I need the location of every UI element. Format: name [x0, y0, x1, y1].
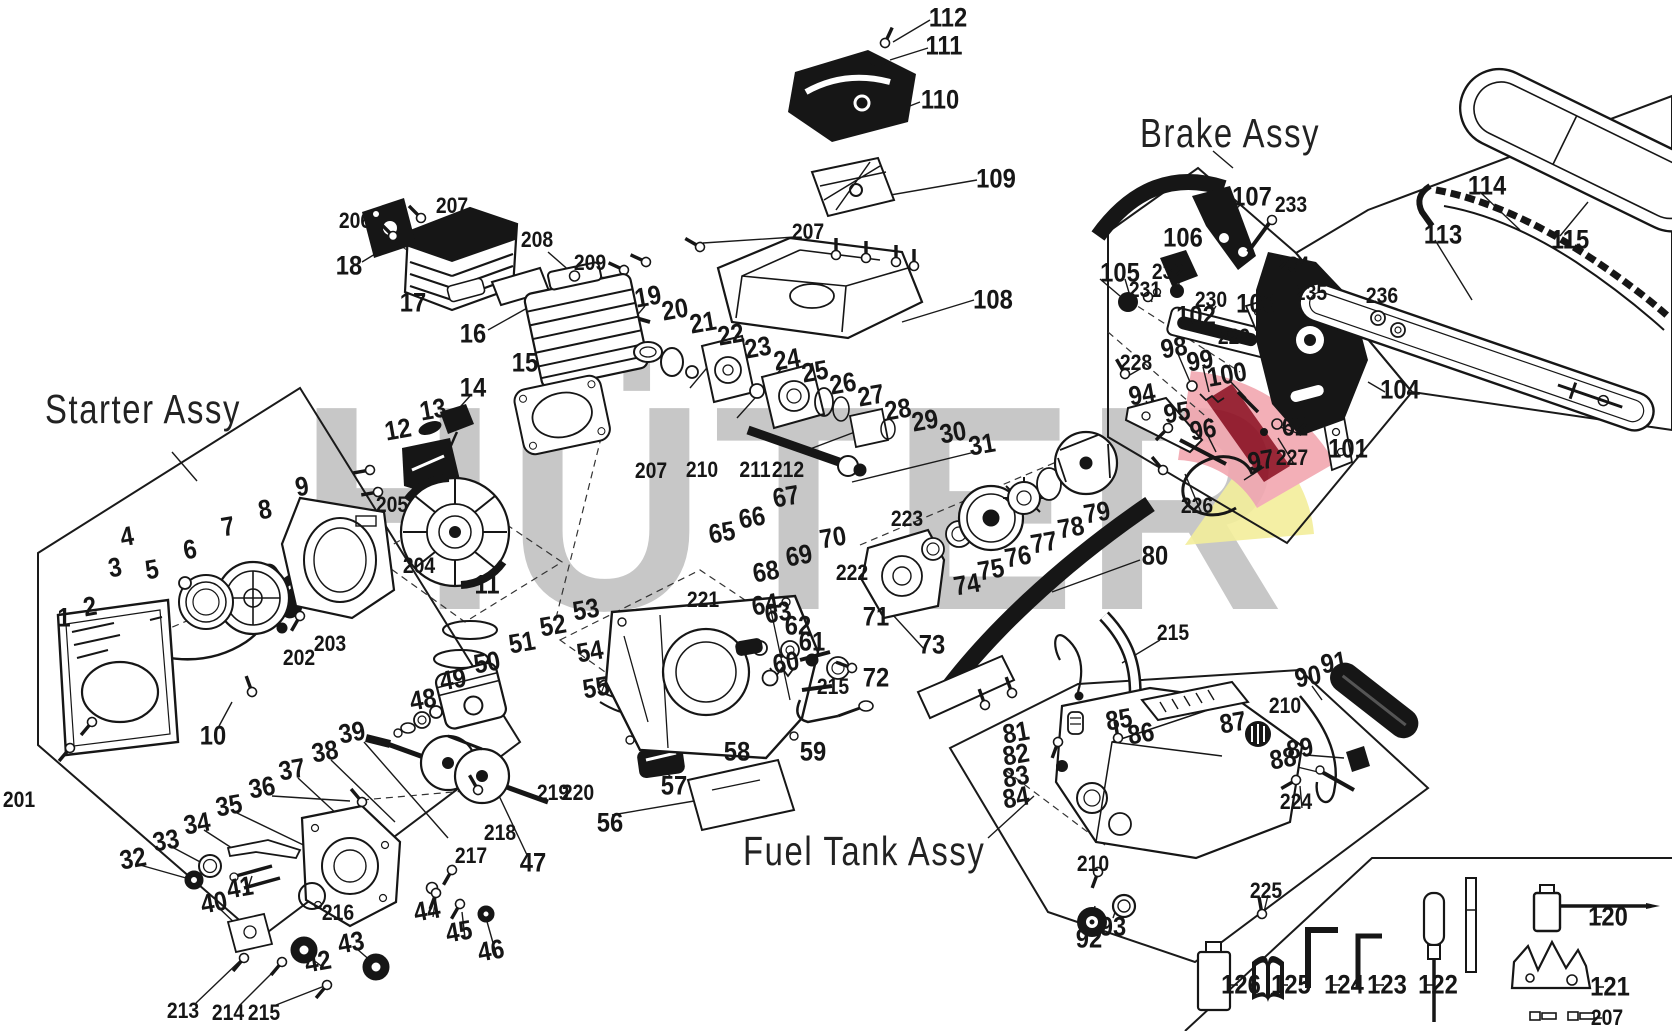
callout-46: 46: [476, 935, 507, 966]
callout-23: 23: [743, 332, 774, 363]
callout-215: 215: [817, 676, 849, 698]
callout-65: 65: [707, 517, 738, 548]
callout-101: 101: [1328, 436, 1368, 463]
callout-221: 221: [687, 589, 719, 611]
callout-42: 42: [303, 946, 334, 977]
callout-87: 87: [1218, 707, 1249, 738]
callout-57: 57: [661, 773, 687, 800]
callout-84: 84: [1001, 782, 1032, 813]
callout-55: 55: [581, 672, 612, 703]
callout-53: 53: [571, 594, 602, 625]
bumper-spike-icon: [1512, 942, 1590, 988]
callout-92: 92: [1076, 926, 1102, 953]
callout-68: 68: [751, 556, 782, 587]
callout-26: 26: [828, 368, 859, 399]
callout-69: 69: [784, 540, 815, 571]
callout-210: 210: [1269, 695, 1301, 717]
callout-111: 111: [925, 33, 962, 60]
callout-76: 76: [1003, 541, 1034, 572]
callout-218: 218: [484, 822, 516, 844]
callout-39: 39: [337, 717, 368, 748]
callout-210: 210: [686, 459, 718, 481]
callout-77: 77: [1029, 527, 1060, 558]
callout-125: 125: [1271, 972, 1311, 999]
callout-207: 207: [436, 195, 468, 217]
callout-1: 1: [57, 605, 70, 632]
callout-206: 206: [339, 210, 371, 232]
callout-227: 227: [1276, 447, 1308, 469]
callout-59: 59: [800, 739, 826, 766]
callout-217: 217: [455, 845, 487, 867]
callout-213: 213: [167, 1000, 199, 1022]
callout-16: 16: [460, 321, 486, 348]
callout-103: 103: [1236, 291, 1276, 318]
callout-106: 106: [1163, 225, 1203, 252]
callout-215: 215: [1157, 622, 1189, 644]
fuel-tank-sketch: [1056, 682, 1302, 858]
callout-86: 86: [1126, 718, 1157, 749]
callout-96: 96: [1188, 414, 1219, 445]
callout-49: 49: [438, 664, 469, 695]
flat-file-icon: [1466, 878, 1476, 972]
callout-30: 30: [938, 417, 969, 448]
callout-235: 235: [1295, 282, 1327, 304]
callout-24: 24: [772, 344, 803, 375]
callout-21: 21: [688, 307, 719, 338]
callout-15: 15: [512, 350, 538, 377]
callout-216: 216: [322, 902, 354, 924]
callout-35: 35: [214, 790, 245, 821]
callout-10: 10: [200, 723, 226, 750]
callout-228: 228: [1120, 352, 1152, 374]
callout-20: 20: [660, 294, 691, 325]
callout-104: 104: [1380, 377, 1420, 404]
callout-120: 120: [1588, 904, 1628, 931]
callout-60: 60: [771, 647, 802, 678]
callout-32: 32: [118, 843, 149, 874]
callout-226: 226: [1181, 495, 1213, 517]
callout-211: 211: [739, 459, 770, 481]
gasket-plate-sketch: [688, 760, 794, 830]
callout-124: 124: [1324, 972, 1364, 999]
callout-123: 123: [1367, 972, 1407, 999]
callout-36: 36: [247, 772, 278, 803]
callout-233: 233: [1275, 194, 1307, 216]
callout-208: 208: [521, 229, 553, 251]
callout-29: 29: [910, 405, 941, 436]
callout-207: 207: [792, 221, 824, 243]
callout-70: 70: [818, 522, 849, 553]
callout-90: 90: [1293, 661, 1324, 692]
callout-209: 209: [574, 252, 606, 274]
callout-54: 54: [575, 636, 606, 667]
cylinder-gasket-sketch: [512, 374, 612, 457]
callout-72: 72: [863, 665, 889, 692]
callout-17: 17: [400, 290, 426, 317]
callout-56: 56: [597, 810, 623, 837]
callout-202: 202: [283, 647, 315, 669]
callout-18: 18: [336, 253, 362, 280]
callout-115: 115: [1551, 227, 1589, 254]
callout-52: 52: [538, 610, 569, 641]
callout-44: 44: [412, 895, 443, 926]
callout-43: 43: [336, 927, 367, 958]
callout-11: 11: [474, 572, 499, 599]
callout-204: 204: [403, 555, 435, 577]
callout-112: 112: [929, 5, 967, 32]
callout-79: 79: [1082, 497, 1113, 528]
callout-214: 214: [212, 1002, 244, 1024]
callout-37: 37: [277, 754, 308, 785]
callout-113: 113: [1424, 222, 1462, 249]
fuel-tank-assy-label: Fuel Tank Assy: [743, 828, 985, 875]
callout-51: 51: [507, 627, 538, 658]
callout-236: 236: [1366, 285, 1398, 307]
callout-205: 205: [376, 494, 408, 516]
callout-13: 13: [418, 394, 449, 425]
callout-207: 207: [635, 460, 667, 482]
callout-12: 12: [383, 414, 414, 445]
callout-220: 220: [562, 782, 594, 804]
callout-91: 91: [1319, 647, 1350, 678]
callout-109: 109: [976, 166, 1016, 193]
callout-108: 108: [973, 287, 1013, 314]
callout-34: 34: [182, 808, 213, 839]
callout-14: 14: [460, 375, 486, 402]
brake-assy-label: Brake Assy: [1140, 110, 1320, 157]
parts-diagram-page: HÜTER: [0, 0, 1672, 1031]
callout-38: 38: [310, 736, 341, 767]
legend-screws-icon: [1530, 1012, 1594, 1020]
callout-71: 71: [863, 604, 889, 631]
callout-215: 215: [248, 1002, 280, 1024]
callout-80: 80: [1142, 543, 1168, 570]
callout-48: 48: [408, 684, 439, 715]
starter-assy-label: Starter Assy: [45, 386, 241, 433]
callout-207: 207: [1591, 1007, 1623, 1029]
callout-203: 203: [314, 633, 346, 655]
callout-231: 231: [1129, 279, 1161, 301]
callout-64: 64: [750, 589, 781, 620]
starter-housing-sketch: [56, 600, 178, 764]
callout-222: 222: [836, 562, 868, 584]
callout-45: 45: [444, 916, 475, 947]
callout-107: 107: [1232, 184, 1272, 211]
washer-sketch: [179, 577, 191, 589]
callout-224: 224: [1280, 791, 1312, 813]
callout-225: 225: [1250, 880, 1282, 902]
callout-102: 102: [1176, 303, 1216, 330]
callout-75: 75: [976, 554, 1007, 585]
pawl-sketch: [277, 623, 288, 634]
screwdriver-icon: [1424, 893, 1444, 1022]
callout-212: 212: [772, 459, 804, 481]
callout-210: 210: [1077, 853, 1109, 875]
callout-122: 122: [1418, 972, 1458, 999]
callout-40: 40: [199, 887, 230, 918]
callout-50: 50: [472, 647, 503, 678]
callout-31: 31: [967, 429, 998, 460]
callout-62: 62: [1282, 414, 1308, 441]
callout-89: 89: [1285, 733, 1316, 764]
callout-229: 229: [1218, 326, 1250, 348]
callout-201: 201: [3, 789, 35, 811]
callout-121: 121: [1590, 974, 1630, 1001]
crankshaft-sketch: [366, 736, 548, 803]
callout-223: 223: [891, 508, 923, 530]
callout-25: 25: [800, 356, 831, 387]
callout-126: 126: [1221, 972, 1261, 999]
callout-67: 67: [771, 481, 802, 512]
callout-110: 110: [921, 87, 959, 114]
filter-plate-sketch: [812, 158, 894, 216]
callout-114: 114: [1468, 173, 1506, 200]
callout-73: 73: [919, 632, 945, 659]
callout-58: 58: [724, 739, 750, 766]
callout-100: 100: [1205, 358, 1249, 391]
callout-41: 41: [225, 872, 256, 903]
callout-94: 94: [1127, 379, 1158, 410]
callout-97: 97: [1246, 445, 1277, 476]
top-cover-sketch: [718, 238, 922, 338]
air-filter-cover-sketch: [788, 26, 916, 142]
callout-47: 47: [520, 850, 546, 877]
callout-66: 66: [737, 502, 768, 533]
callout-78: 78: [1056, 512, 1087, 543]
callout-33: 33: [151, 825, 182, 856]
callout-234: 234: [1277, 254, 1309, 276]
callout-93: 93: [1100, 914, 1126, 941]
